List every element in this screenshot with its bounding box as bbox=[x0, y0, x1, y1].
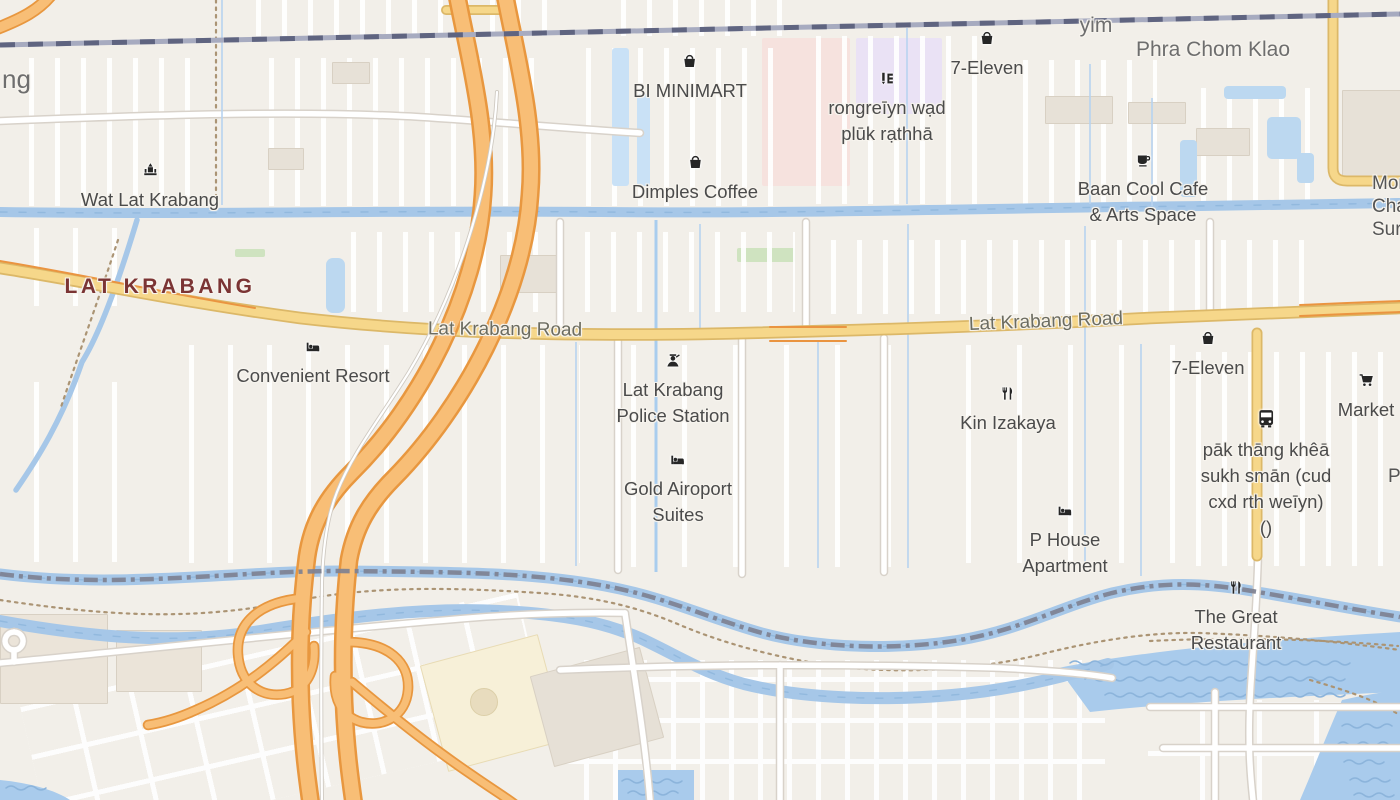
temple-icon bbox=[142, 162, 159, 179]
shopping-basket-icon bbox=[682, 53, 699, 70]
poi-label: The Great Restaurant bbox=[1191, 604, 1282, 656]
poi-label: Market bbox=[1338, 397, 1395, 423]
poi-the-great-restaurant[interactable]: The Great Restaurant bbox=[1191, 579, 1282, 656]
poi-pak-thang-bus-stop[interactable]: pāk thāng khêā sukh smān (cud cxd rth we… bbox=[1201, 408, 1332, 541]
hotel-bed-icon bbox=[1056, 502, 1073, 519]
shopping-cart-icon bbox=[1357, 372, 1374, 389]
shopping-basket-icon bbox=[686, 154, 703, 171]
hotel-bed-icon bbox=[304, 338, 321, 355]
poi-convenient-resort[interactable]: Convenient Resort bbox=[236, 338, 389, 389]
poi-label: rongreīyn wạd plūk rạthhā bbox=[828, 95, 945, 147]
street-label-phra-chom-klao: Phra Chom Klao bbox=[1136, 38, 1290, 62]
cafe-icon bbox=[1135, 151, 1152, 168]
poi-p-house-apartment[interactable]: P House Apartment bbox=[1022, 502, 1107, 579]
poi-label: 7-Eleven bbox=[1171, 355, 1244, 381]
poi-market[interactable]: Market bbox=[1338, 372, 1395, 423]
poi-bi-minimart[interactable]: BI MINIMART bbox=[633, 53, 747, 104]
street-label-truncated-ng: ng bbox=[2, 64, 31, 95]
restaurant-icon bbox=[1228, 579, 1245, 596]
road-label-lat-krabang-west: Lat Krabang Road bbox=[428, 318, 582, 341]
poi-label: Wat Lat Krabang bbox=[81, 187, 219, 213]
poi-label: Kin Izakaya bbox=[960, 410, 1056, 436]
poi-label: P House Apartment bbox=[1022, 527, 1107, 579]
poi-wat-lat-krabang[interactable]: Wat Lat Krabang bbox=[81, 162, 219, 213]
poi-kin-izakaya[interactable]: Kin Izakaya bbox=[960, 385, 1056, 436]
district-label: LAT KRABANG bbox=[65, 275, 256, 299]
water-bodies bbox=[0, 632, 1400, 800]
poi-label: pāk thāng khêā sukh smān (cud cxd rth we… bbox=[1201, 437, 1332, 541]
street-label-truncated-ph: Ph bbox=[1388, 466, 1400, 488]
shopping-basket-icon bbox=[1199, 330, 1216, 347]
restaurant-icon bbox=[999, 385, 1016, 402]
hotel-bed-icon bbox=[669, 451, 686, 468]
poi-dimples-coffee[interactable]: Dimples Coffee bbox=[632, 154, 758, 205]
poi-seven-eleven-east[interactable]: 7-Eleven bbox=[1171, 330, 1244, 381]
bus-stop-icon bbox=[1256, 408, 1277, 429]
poi-seven-eleven-north[interactable]: 7-Eleven bbox=[950, 30, 1023, 81]
poi-label: 7-Eleven bbox=[950, 55, 1023, 81]
poi-label: Baan Cool Cafe & Arts Space bbox=[1078, 176, 1209, 228]
poi-baan-cool-cafe[interactable]: Baan Cool Cafe & Arts Space bbox=[1078, 151, 1209, 228]
shopping-basket-icon bbox=[978, 30, 995, 47]
school-icon bbox=[878, 70, 895, 87]
map-canvas[interactable]: LAT KRABANG Lat Krabang Road Lat Krabang… bbox=[0, 0, 1400, 800]
street-label-yim: yim bbox=[1080, 14, 1113, 38]
poi-rongreiyn-school[interactable]: rongreīyn wạd plūk rạthhā bbox=[828, 70, 945, 147]
poi-label: Gold Airoport Suites bbox=[624, 476, 732, 528]
poi-lat-krabang-police-station[interactable]: Lat Krabang Police Station bbox=[616, 352, 729, 429]
poi-label: Dimples Coffee bbox=[632, 179, 758, 205]
poi-gold-airoport-suites[interactable]: Gold Airoport Suites bbox=[624, 451, 732, 528]
street-label-truncated-monu: Monu Cha Surawor bbox=[1372, 172, 1400, 241]
poi-label: BI MINIMART bbox=[633, 78, 747, 104]
poi-label: Convenient Resort bbox=[236, 363, 389, 389]
poi-label: Lat Krabang Police Station bbox=[616, 377, 729, 429]
police-icon bbox=[665, 352, 682, 369]
